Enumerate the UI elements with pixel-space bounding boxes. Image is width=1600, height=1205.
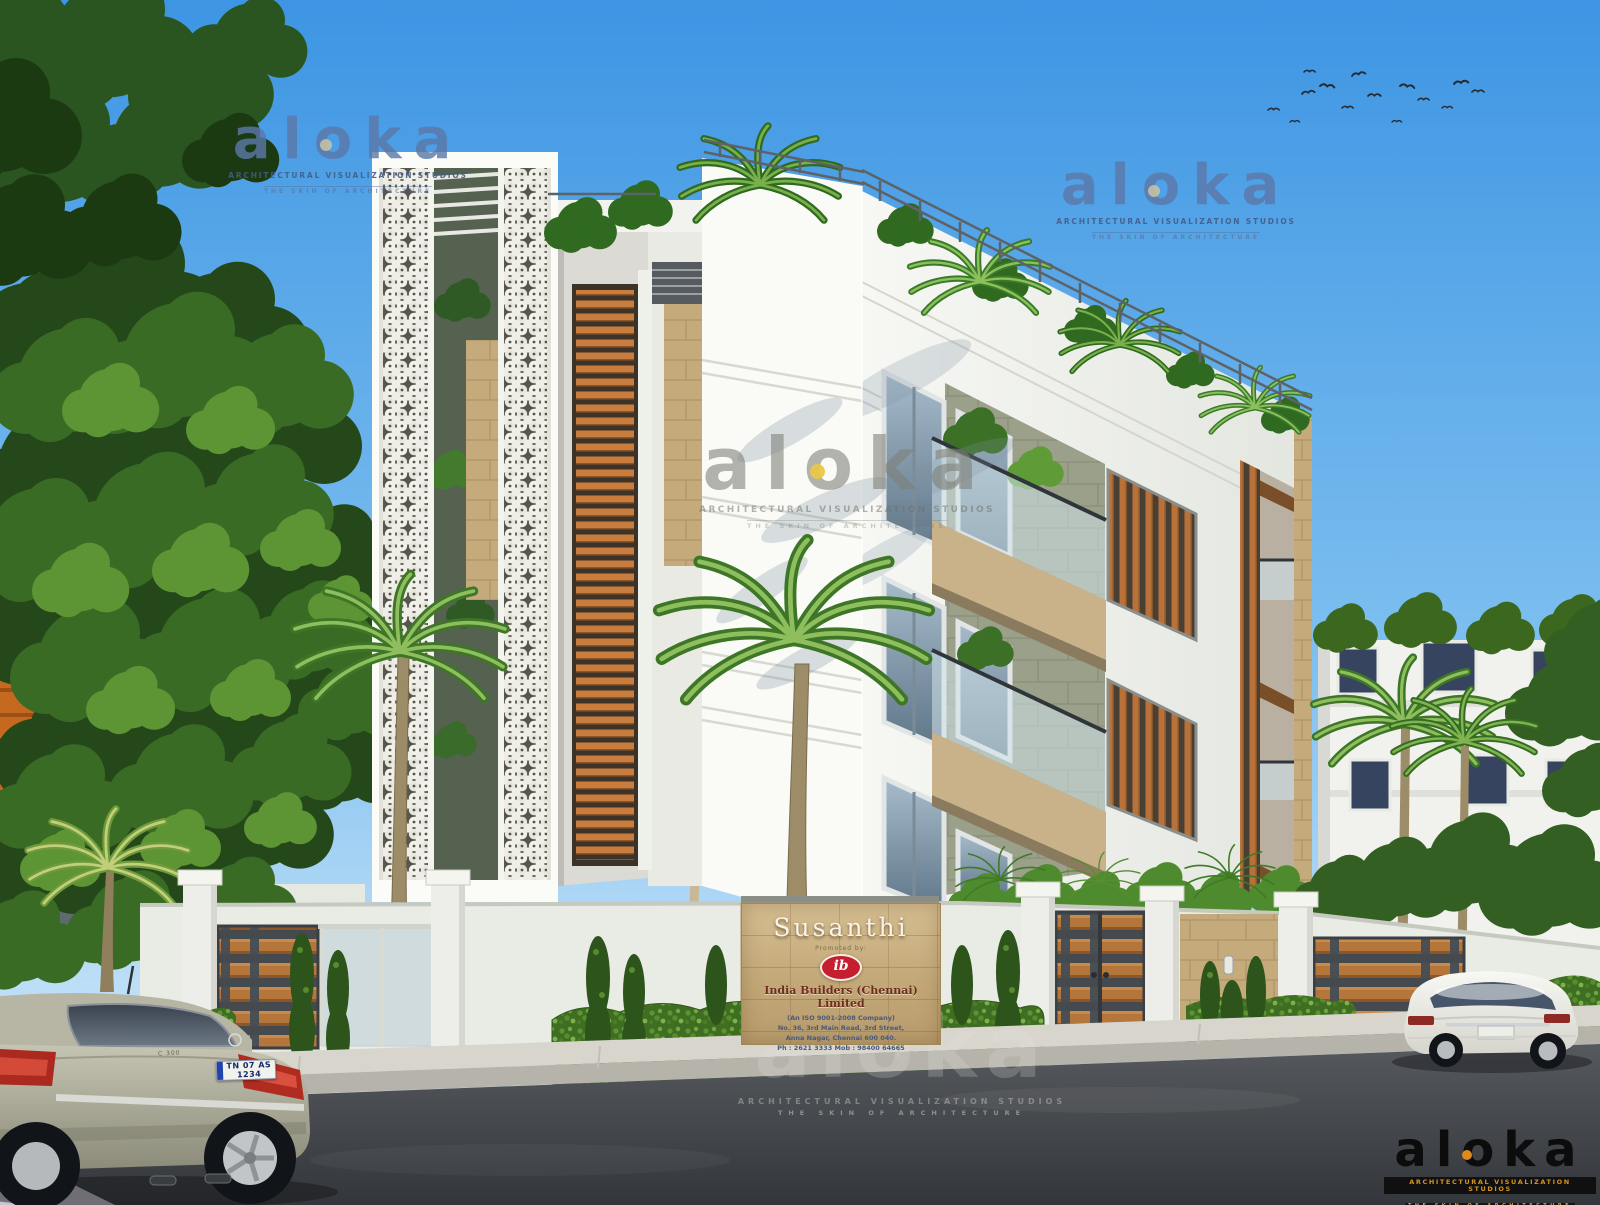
builder-logo-badge: ib — [820, 954, 862, 981]
service-wall — [648, 210, 702, 886]
iso-line: (An ISO 9001-2008 Company) — [742, 1013, 940, 1023]
address-line-2: Anna Nagar, Chennai 600 040. — [742, 1033, 940, 1043]
plate-number: TN 07 AS 1234 — [223, 1060, 276, 1080]
project-signboard: Susanthi Promoted by: ib India Builders … — [741, 903, 941, 1045]
phone-line: Ph : 2621 3333 Mob : 98400 64665 — [742, 1043, 940, 1053]
promoted-by-label: Promoted by: — [742, 945, 940, 952]
corner-balcony-bay — [1240, 409, 1312, 898]
architectural-render-screenshot: aloka ARCHITECTURAL VISUALIZATION STUDIO… — [0, 0, 1600, 1205]
license-plate-left: TN 07 AS 1234 — [216, 1059, 277, 1081]
car-model-badge: C 300 — [158, 1049, 181, 1057]
builder-company-name: India Builders (Chennai) Limited — [742, 984, 940, 1010]
project-name: Susanthi — [742, 913, 940, 942]
address-line-1: No. 36, 3rd Main Road, 3rd Street, — [742, 1023, 940, 1033]
